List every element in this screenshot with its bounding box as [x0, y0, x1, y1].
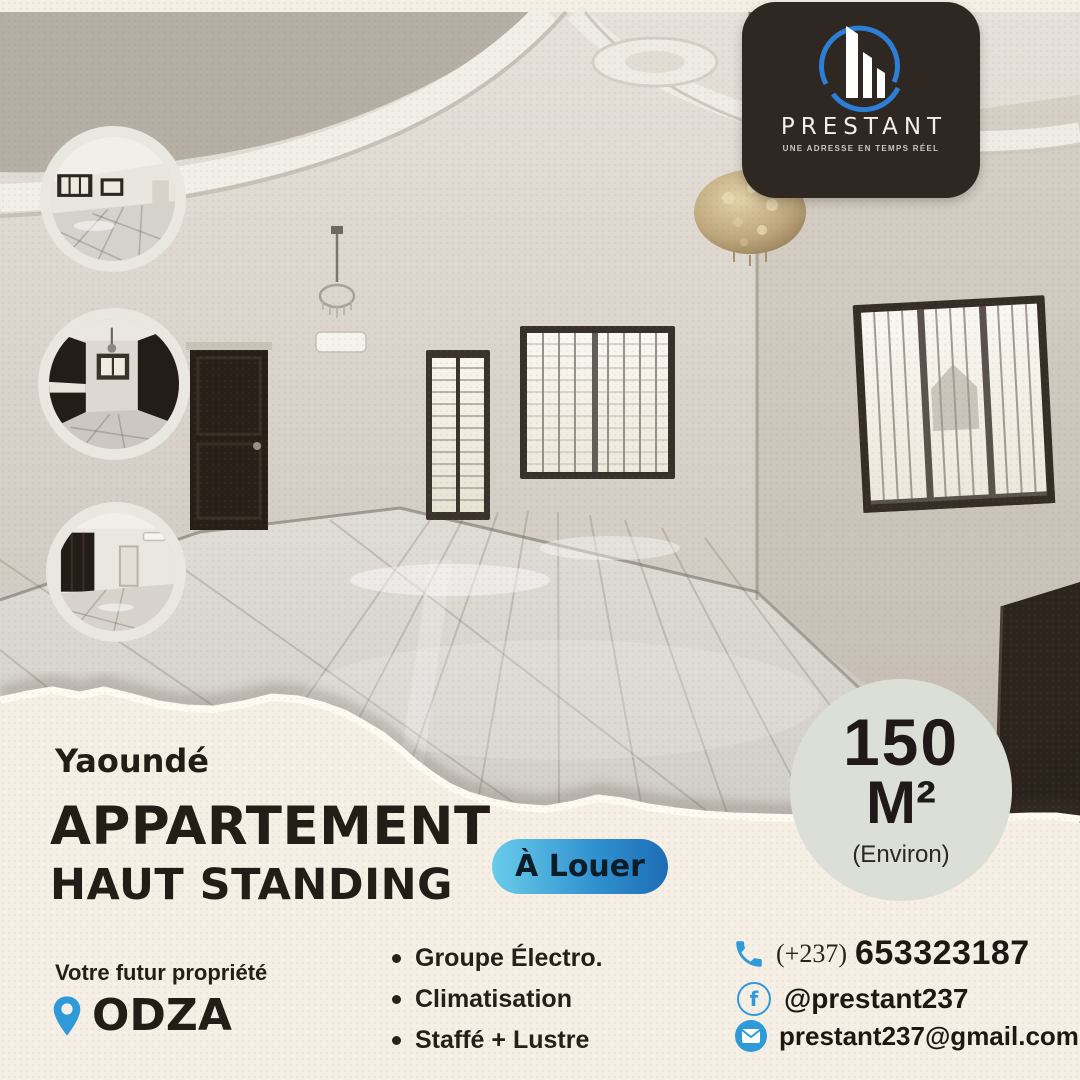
bullet-icon	[392, 1036, 401, 1045]
email-address: prestant237@gmail.com	[779, 1021, 1079, 1052]
bullet-icon	[392, 995, 401, 1004]
mail-icon	[735, 1020, 767, 1052]
city-label: Yaoundé	[55, 742, 209, 780]
thumbnail-living-room	[40, 126, 186, 272]
feature-item: Climatisation	[392, 985, 603, 1013]
email-contact[interactable]: prestant237@gmail.com	[735, 1020, 1079, 1052]
facebook-icon: f	[737, 982, 771, 1016]
thumbnail-bedroom-image	[57, 513, 175, 631]
area-unit: M²	[866, 773, 936, 833]
brand-name: PRESTANT	[775, 116, 947, 139]
area-value: 150	[843, 711, 959, 774]
phone-number: 653323187	[855, 934, 1030, 973]
feature-label: Groupe Électro.	[415, 944, 603, 973]
facebook-letter: f	[750, 987, 759, 1011]
brand-logo-icon	[806, 12, 916, 116]
area-note: (Environ)	[852, 841, 949, 869]
feature-item: Staffé + Lustre	[392, 1026, 603, 1054]
flyer-canvas: PRESTANT UNE ADRESSE EN TEMPS RÉEL Yaoun…	[0, 0, 1080, 1080]
envelope-glyph	[741, 1028, 761, 1044]
listing-title-line1: APPARTEMENT	[50, 800, 491, 853]
bullet-icon	[392, 954, 401, 963]
neighborhood-name: ODZA	[92, 994, 232, 1038]
feature-label: Staffé + Lustre	[415, 1026, 589, 1055]
listing-title-line2: HAUT STANDING	[50, 864, 453, 907]
facebook-handle: @prestant237	[784, 983, 969, 1015]
feature-label: Climatisation	[415, 985, 572, 1014]
phone-prefix: (+237)	[776, 939, 847, 969]
thumbnail-bedroom	[46, 502, 186, 642]
brand-tagline: UNE ADRESSE EN TEMPS RÉEL	[783, 144, 940, 153]
thumbnail-living-room-image	[51, 137, 175, 261]
status-badge-a-louer[interactable]: À Louer	[492, 839, 668, 894]
feature-item: Groupe Électro.	[392, 944, 603, 972]
neighborhood-row: ODZA	[50, 994, 232, 1038]
thumbnail-kitchen-image	[49, 319, 179, 449]
area-badge: 150 M² (Environ)	[790, 679, 1012, 901]
facebook-contact[interactable]: f @prestant237	[737, 982, 969, 1016]
feature-list: Groupe Électro. Climatisation Staffé + L…	[392, 944, 603, 1054]
map-pin-icon	[50, 995, 84, 1037]
phone-icon	[732, 937, 766, 971]
phone-contact[interactable]: (+237) 653323187	[732, 934, 1030, 973]
thumbnail-kitchen	[38, 308, 190, 460]
brand-logo-panel: PRESTANT UNE ADRESSE EN TEMPS RÉEL	[742, 2, 980, 198]
future-property-label: Votre futur propriété	[55, 960, 267, 986]
